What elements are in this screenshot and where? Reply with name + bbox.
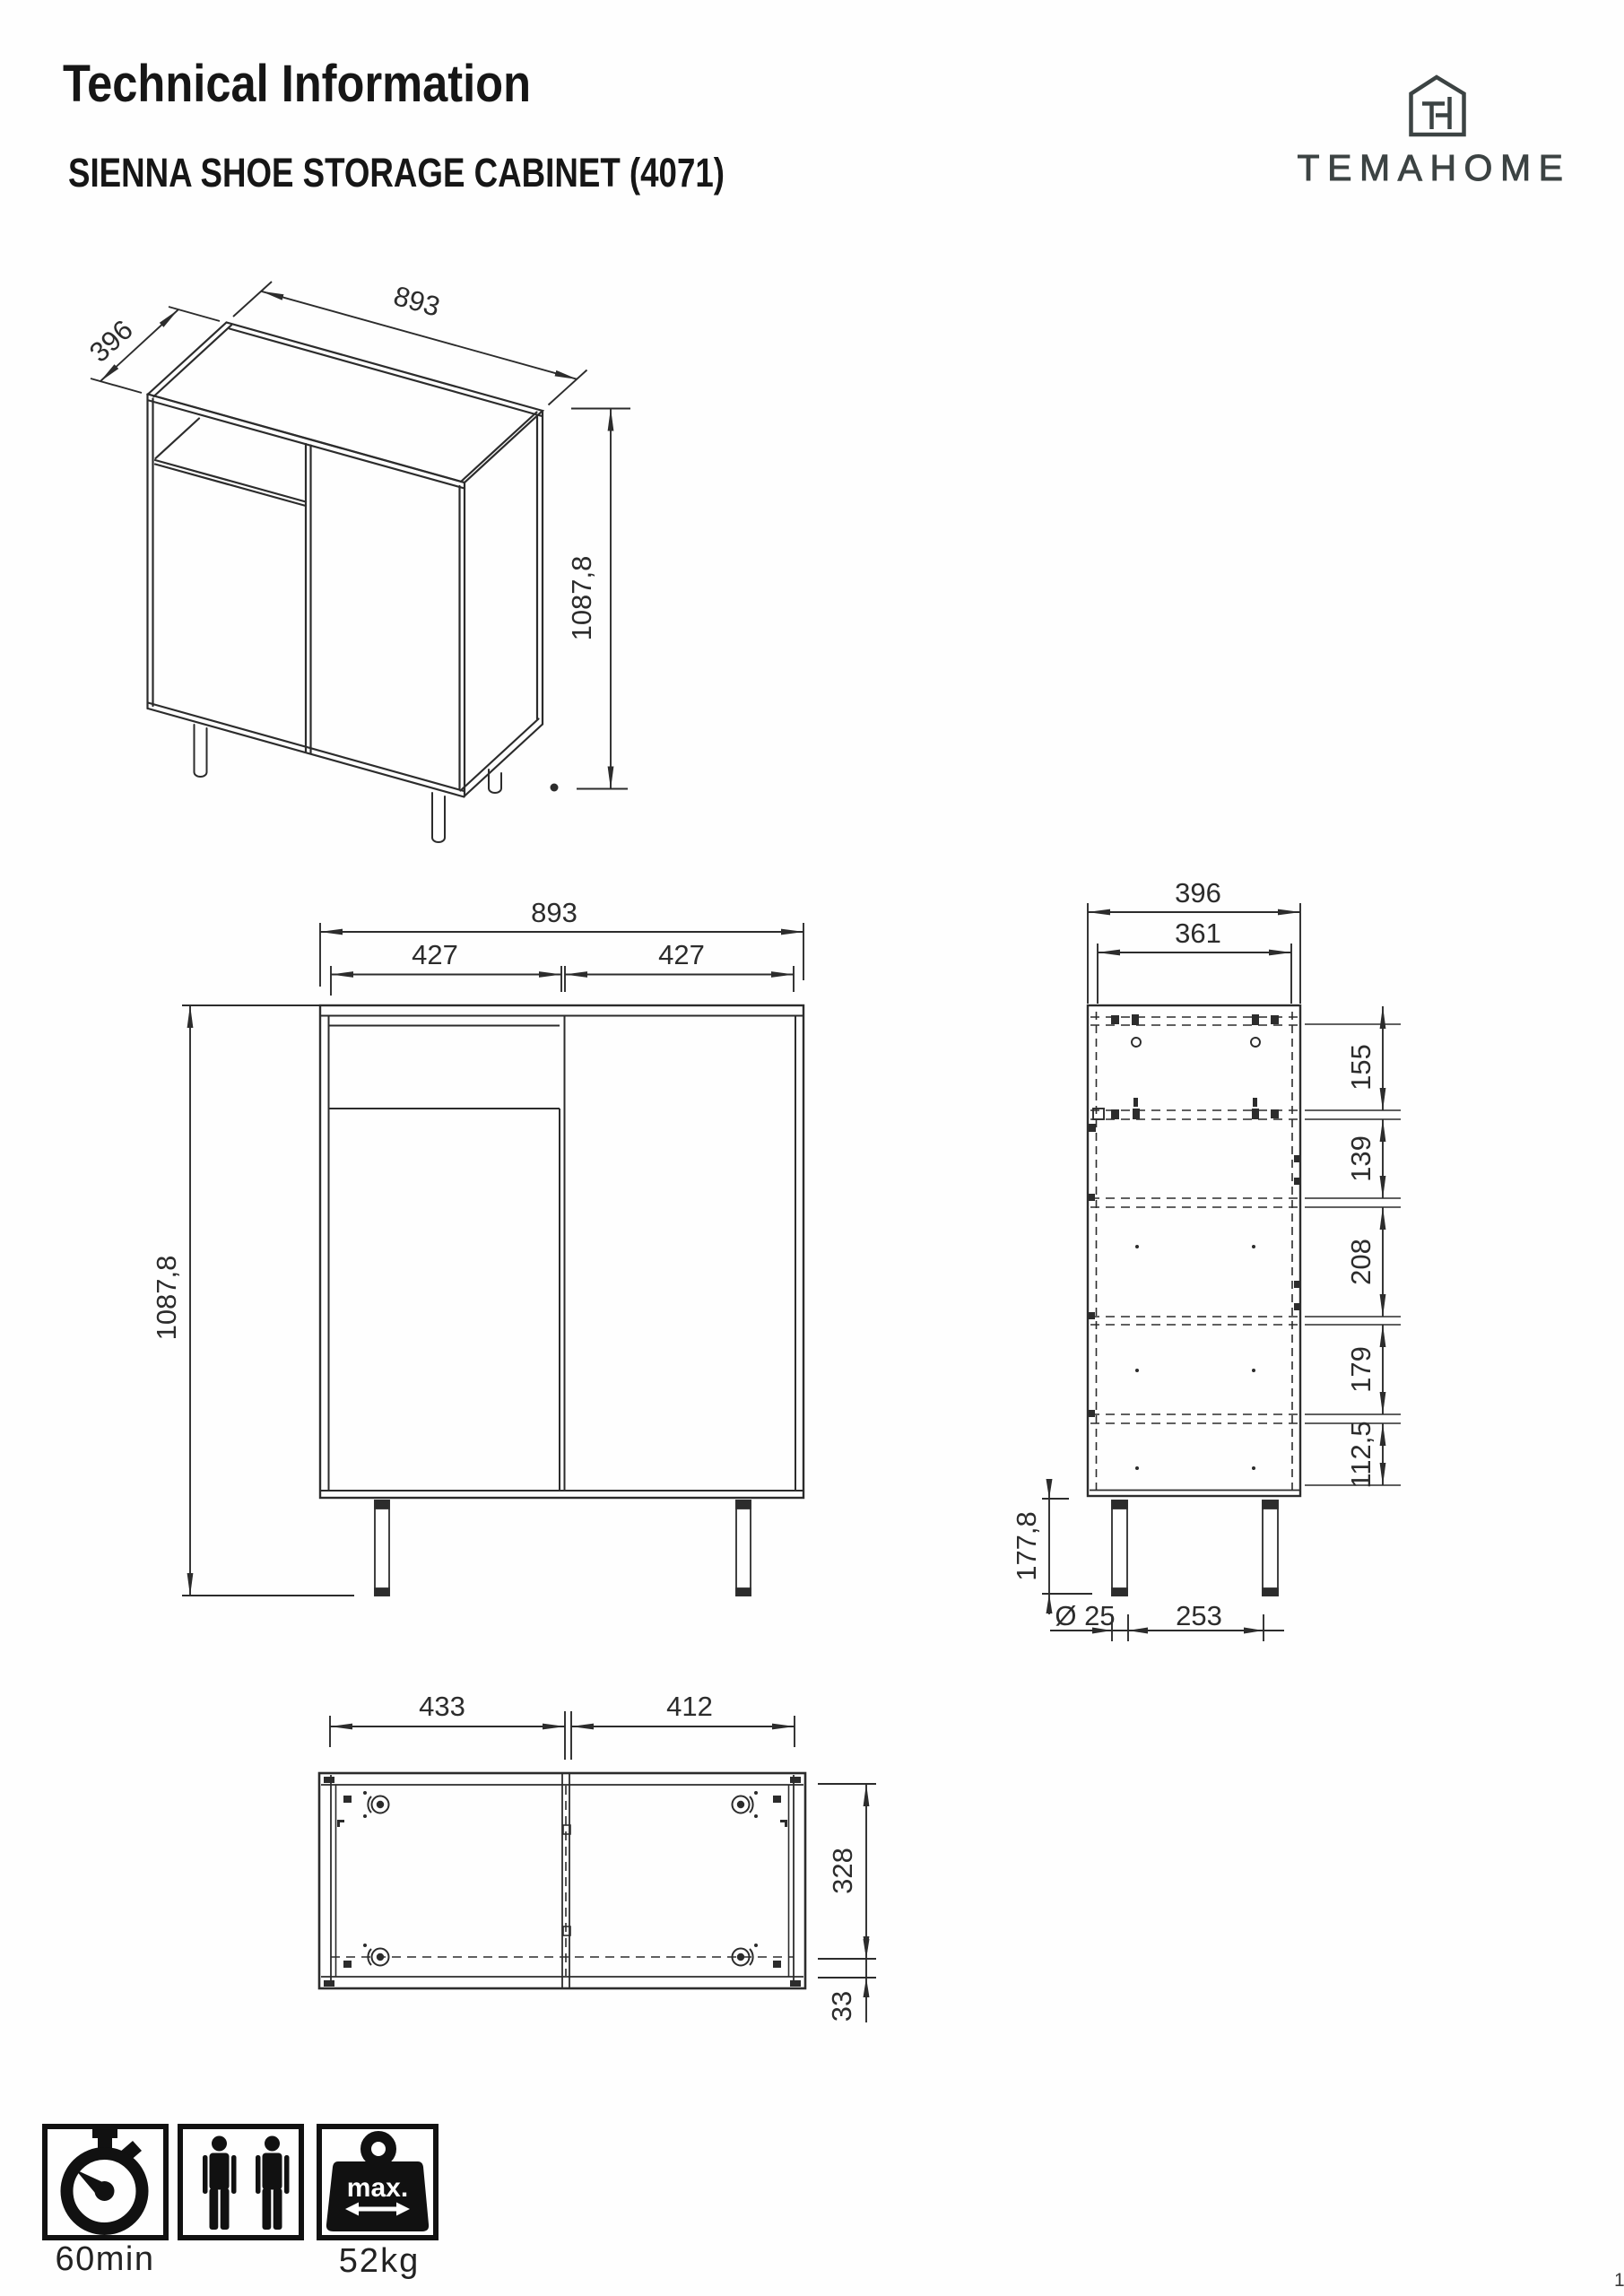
svg-text:179: 179 bbox=[1345, 1346, 1376, 1393]
svg-text:893: 893 bbox=[390, 280, 443, 323]
svg-text:33: 33 bbox=[826, 1991, 857, 2022]
svg-text:396: 396 bbox=[1175, 877, 1221, 909]
svg-text:1087,8: 1087,8 bbox=[566, 556, 597, 641]
svg-text:Ø 25: Ø 25 bbox=[1055, 1600, 1115, 1631]
svg-text:52kg: 52kg bbox=[339, 2242, 420, 2280]
svg-text:139: 139 bbox=[1345, 1135, 1376, 1182]
svg-text:328: 328 bbox=[827, 1848, 858, 1894]
svg-text:60min: 60min bbox=[56, 2240, 155, 2278]
svg-text:SIENNA SHOE STORAGE CABINET (4: SIENNA SHOE STORAGE CABINET (4071) bbox=[68, 150, 725, 196]
svg-text:427: 427 bbox=[658, 939, 705, 970]
svg-text:112,5: 112,5 bbox=[1345, 1421, 1376, 1488]
svg-text:208: 208 bbox=[1345, 1239, 1376, 1285]
svg-text:253: 253 bbox=[1176, 1600, 1222, 1631]
svg-text:361: 361 bbox=[1175, 918, 1221, 949]
svg-text:Technical Information: Technical Information bbox=[63, 55, 531, 113]
svg-text:177,8: 177,8 bbox=[1011, 1511, 1042, 1581]
svg-text:1: 1 bbox=[1614, 2270, 1624, 2291]
svg-text:433: 433 bbox=[419, 1691, 465, 1722]
svg-text:412: 412 bbox=[666, 1691, 713, 1722]
svg-text:396: 396 bbox=[83, 314, 139, 369]
svg-text:893: 893 bbox=[531, 897, 578, 928]
svg-text:1087,8: 1087,8 bbox=[151, 1256, 182, 1341]
svg-text:max.: max. bbox=[347, 2173, 408, 2203]
svg-text:TEMAHOME: TEMAHOME bbox=[1298, 147, 1571, 188]
svg-text:155: 155 bbox=[1345, 1044, 1376, 1091]
svg-text:427: 427 bbox=[412, 939, 458, 970]
